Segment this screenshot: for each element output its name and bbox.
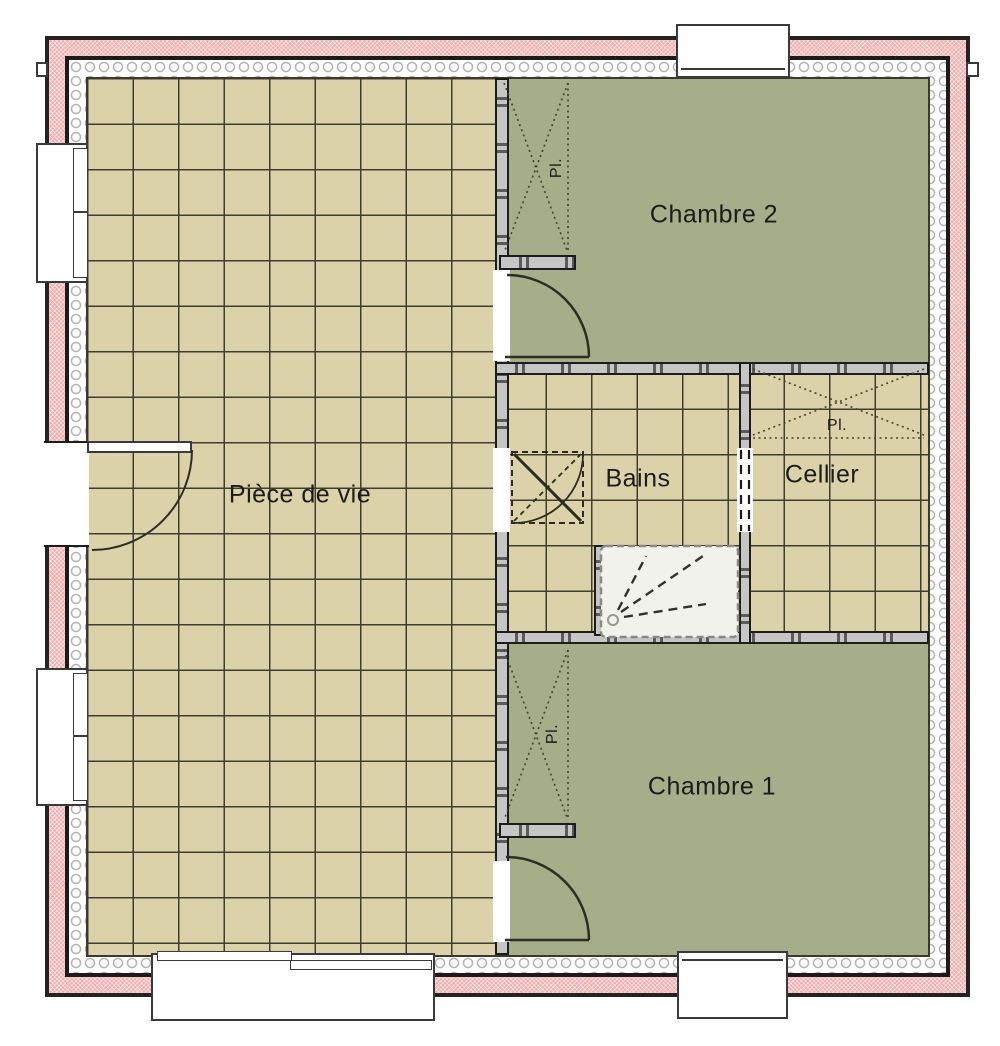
room-label-chambre-1: Chambre 1 bbox=[648, 773, 776, 802]
window-bottom-piece-de-vie-panel-left bbox=[157, 951, 292, 961]
window-left-upper-divider bbox=[73, 211, 88, 213]
room-cellier-floor bbox=[751, 375, 929, 631]
interior-wall-middle-bottom bbox=[495, 631, 929, 644]
window-left-lower-divider bbox=[73, 735, 88, 737]
pocket-door-opening bbox=[737, 448, 753, 532]
door-opening-bains bbox=[493, 448, 510, 532]
window-left-lower-frame bbox=[73, 673, 88, 801]
closet-wall-chambre-1 bbox=[499, 823, 576, 838]
room-label-chambre-2: Chambre 2 bbox=[650, 201, 778, 230]
interior-wall-middle-top bbox=[495, 362, 929, 375]
window-top-chambre-2-sill bbox=[681, 68, 785, 70]
window-left-upper-frame bbox=[73, 148, 88, 278]
vent-tab-right bbox=[966, 62, 979, 77]
room-label-piece-de-vie: Pièce de vie bbox=[229, 481, 371, 510]
entrance-door-leaf bbox=[87, 441, 192, 453]
vent-tab-left bbox=[36, 62, 48, 77]
closet-label-chambre-1: Pl. bbox=[544, 724, 562, 744]
door-opening-chambre-2 bbox=[493, 270, 510, 361]
room-label-cellier: Cellier bbox=[785, 461, 859, 490]
door-opening-entrance bbox=[44, 441, 89, 547]
window-bottom-chambre-1 bbox=[677, 951, 788, 1019]
room-label-bains: Bains bbox=[605, 465, 670, 494]
closet-wall-chambre-2 bbox=[499, 255, 576, 270]
room-piece-de-vie-floor bbox=[87, 78, 495, 956]
window-bottom-piece-de-vie-panel-right bbox=[290, 960, 432, 970]
closet-label-chambre-2: Pl. bbox=[548, 158, 566, 178]
floor-plan: Pièce de vie Chambre 2 Chambre 1 Bains C… bbox=[0, 0, 1000, 1046]
door-opening-chambre-1 bbox=[493, 861, 510, 942]
closet-label-cellier: Pl. bbox=[827, 417, 847, 435]
shower-wall-stub bbox=[594, 545, 605, 636]
window-bottom-chambre-1-sill bbox=[682, 959, 783, 961]
room-bains-floor bbox=[508, 375, 739, 631]
